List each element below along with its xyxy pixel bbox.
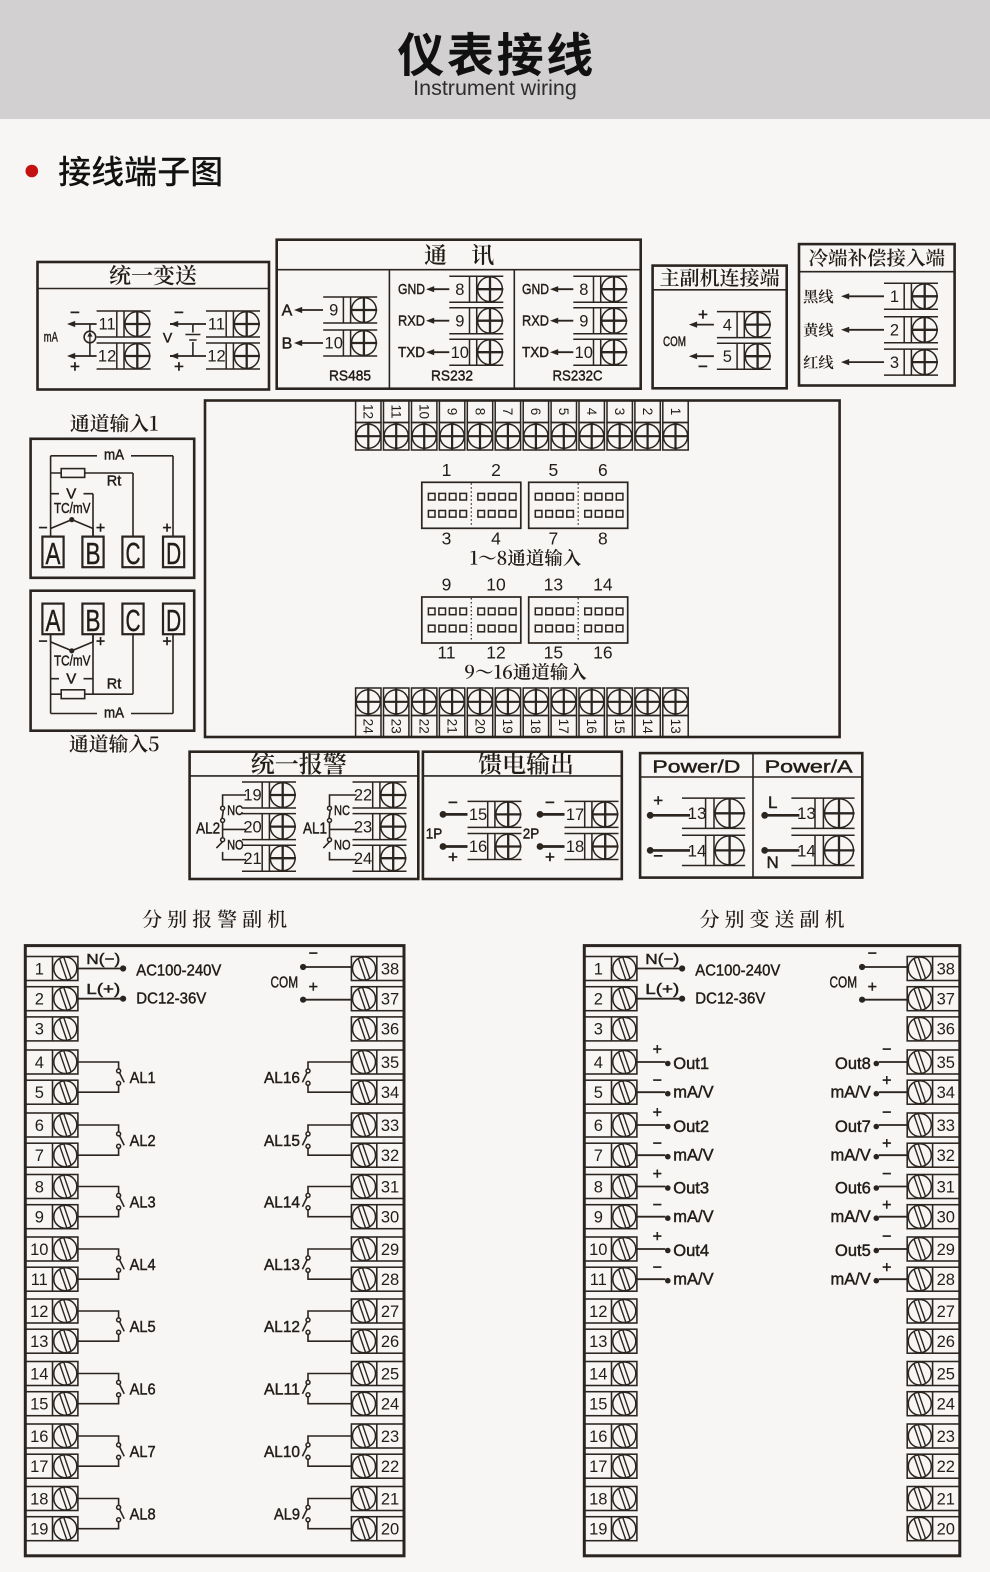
svg-text:+: + bbox=[882, 1136, 891, 1153]
svg-text:12: 12 bbox=[98, 348, 116, 366]
svg-text:L(+): L(+) bbox=[645, 981, 679, 998]
svg-text:14: 14 bbox=[797, 841, 816, 860]
svg-text:−: − bbox=[868, 946, 877, 963]
svg-text:22: 22 bbox=[354, 787, 372, 805]
svg-text:+: + bbox=[882, 1073, 891, 1090]
svg-text:RXD: RXD bbox=[522, 313, 549, 330]
svg-text:mA/V: mA/V bbox=[673, 1271, 713, 1289]
svg-text:38: 38 bbox=[937, 960, 955, 978]
svg-text:AL1: AL1 bbox=[130, 1070, 156, 1087]
svg-text:−: − bbox=[653, 1073, 662, 1090]
svg-text:+: + bbox=[448, 848, 458, 867]
svg-text:9: 9 bbox=[594, 1209, 603, 1227]
svg-text:26: 26 bbox=[937, 1333, 955, 1351]
svg-text:24: 24 bbox=[354, 850, 372, 868]
svg-text:24: 24 bbox=[381, 1396, 399, 1414]
svg-text:22: 22 bbox=[937, 1458, 955, 1476]
svg-text:8: 8 bbox=[35, 1178, 44, 1196]
svg-text:AL11: AL11 bbox=[264, 1381, 300, 1398]
svg-text:GND: GND bbox=[398, 281, 425, 298]
svg-text:26: 26 bbox=[381, 1333, 399, 1351]
svg-text:15: 15 bbox=[544, 643, 563, 663]
svg-text:10: 10 bbox=[30, 1241, 48, 1259]
svg-text:2: 2 bbox=[890, 322, 899, 340]
svg-text:AL5: AL5 bbox=[130, 1319, 156, 1336]
svg-text:28: 28 bbox=[937, 1271, 955, 1289]
svg-text:22: 22 bbox=[381, 1458, 399, 1476]
svg-text:AL4: AL4 bbox=[130, 1257, 156, 1274]
svg-text:V: V bbox=[163, 330, 173, 346]
svg-text:10: 10 bbox=[416, 404, 431, 419]
svg-text:NC: NC bbox=[334, 802, 350, 818]
svg-text:+: + bbox=[96, 520, 105, 537]
svg-text:TC/mV: TC/mV bbox=[54, 654, 91, 670]
svg-text:Power/A: Power/A bbox=[765, 757, 853, 777]
svg-text:11: 11 bbox=[437, 643, 455, 663]
svg-text:GND: GND bbox=[522, 281, 549, 298]
svg-text:5: 5 bbox=[556, 408, 571, 416]
svg-text:1: 1 bbox=[594, 960, 603, 978]
svg-text:mA/V: mA/V bbox=[830, 1147, 870, 1165]
svg-text:1: 1 bbox=[890, 288, 899, 306]
svg-text:C: C bbox=[126, 603, 141, 638]
svg-text:16: 16 bbox=[589, 1428, 607, 1446]
svg-text:14: 14 bbox=[593, 575, 613, 595]
svg-text:B: B bbox=[86, 536, 101, 571]
svg-text:−: − bbox=[448, 793, 458, 812]
svg-text:1P: 1P bbox=[426, 826, 443, 843]
svg-text:29: 29 bbox=[381, 1241, 399, 1259]
svg-text:7: 7 bbox=[500, 408, 515, 416]
svg-text:B: B bbox=[282, 336, 293, 353]
svg-text:−: − bbox=[653, 1197, 662, 1214]
svg-text:−: − bbox=[882, 1229, 891, 1246]
svg-text:V: V bbox=[66, 485, 76, 502]
svg-text:COM: COM bbox=[663, 333, 686, 349]
svg-text:−: − bbox=[882, 1042, 891, 1059]
svg-text:27: 27 bbox=[381, 1303, 399, 1321]
svg-text:RS485: RS485 bbox=[329, 368, 371, 385]
svg-text:−: − bbox=[882, 1166, 891, 1183]
svg-text:8: 8 bbox=[598, 529, 608, 549]
svg-text:COM: COM bbox=[271, 975, 299, 992]
svg-text:21: 21 bbox=[937, 1490, 955, 1508]
svg-text:9: 9 bbox=[329, 302, 338, 320]
svg-text:AL8: AL8 bbox=[130, 1506, 156, 1523]
svg-text:+: + bbox=[653, 1166, 662, 1183]
svg-text:29: 29 bbox=[937, 1241, 955, 1259]
svg-text:10: 10 bbox=[589, 1241, 607, 1259]
svg-text:−: − bbox=[653, 1260, 662, 1277]
svg-text:8: 8 bbox=[472, 408, 487, 416]
svg-text:19: 19 bbox=[30, 1521, 48, 1539]
svg-text:+: + bbox=[653, 1105, 662, 1122]
svg-text:4: 4 bbox=[594, 1054, 603, 1072]
svg-text:1: 1 bbox=[35, 960, 44, 978]
svg-text:−: − bbox=[38, 520, 47, 537]
svg-text:10: 10 bbox=[325, 335, 343, 353]
svg-text:34: 34 bbox=[937, 1084, 955, 1102]
svg-text:NO: NO bbox=[227, 837, 244, 853]
svg-text:TXD: TXD bbox=[522, 344, 549, 361]
svg-text:AL14: AL14 bbox=[264, 1194, 300, 1211]
svg-text:5: 5 bbox=[549, 460, 559, 480]
svg-text:L: L bbox=[768, 793, 777, 812]
svg-text:25: 25 bbox=[937, 1365, 955, 1383]
svg-text:Rt: Rt bbox=[107, 473, 122, 489]
svg-text:7: 7 bbox=[594, 1147, 603, 1165]
svg-text:11: 11 bbox=[590, 1271, 607, 1289]
svg-text:−: − bbox=[882, 1105, 891, 1122]
svg-text:AL7: AL7 bbox=[130, 1444, 156, 1461]
svg-text:3: 3 bbox=[890, 354, 899, 372]
svg-text:19: 19 bbox=[589, 1521, 607, 1539]
svg-text:C: C bbox=[126, 536, 141, 571]
svg-text:Instrument wiring: Instrument wiring bbox=[413, 76, 577, 100]
svg-text:L(+): L(+) bbox=[86, 981, 120, 998]
svg-text:+: + bbox=[70, 357, 80, 376]
svg-text:mA/V: mA/V bbox=[830, 1084, 870, 1102]
svg-text:30: 30 bbox=[381, 1209, 399, 1227]
svg-text:−: − bbox=[309, 946, 318, 963]
svg-text:5: 5 bbox=[594, 1084, 603, 1102]
svg-text:mA/V: mA/V bbox=[673, 1084, 713, 1102]
svg-text:17: 17 bbox=[566, 806, 584, 824]
svg-text:33: 33 bbox=[381, 1117, 399, 1135]
svg-text:8: 8 bbox=[455, 281, 464, 299]
svg-text:24: 24 bbox=[937, 1396, 955, 1414]
svg-text:+: + bbox=[882, 1197, 891, 1214]
svg-text:−: − bbox=[70, 303, 80, 322]
svg-text:18: 18 bbox=[589, 1490, 607, 1508]
svg-text:23: 23 bbox=[381, 1428, 399, 1446]
svg-text:16: 16 bbox=[593, 643, 612, 663]
svg-text:2: 2 bbox=[594, 991, 603, 1009]
svg-text:2P: 2P bbox=[523, 826, 540, 843]
svg-text:8: 8 bbox=[594, 1178, 603, 1196]
svg-text:20: 20 bbox=[381, 1521, 399, 1539]
svg-text:DC12-36V: DC12-36V bbox=[695, 991, 765, 1008]
svg-text:AC100-240V: AC100-240V bbox=[136, 963, 221, 980]
svg-text:mA: mA bbox=[104, 705, 124, 721]
svg-text:Out8: Out8 bbox=[835, 1055, 871, 1073]
svg-text:AL6: AL6 bbox=[130, 1381, 156, 1398]
svg-text:14: 14 bbox=[640, 719, 655, 735]
svg-text:8: 8 bbox=[579, 281, 588, 299]
svg-text:27: 27 bbox=[937, 1303, 955, 1321]
svg-text:31: 31 bbox=[381, 1178, 399, 1196]
svg-text:COM: COM bbox=[830, 975, 858, 992]
svg-text:4: 4 bbox=[491, 529, 501, 549]
svg-text:AL3: AL3 bbox=[130, 1194, 156, 1211]
svg-text:AL9: AL9 bbox=[274, 1506, 300, 1523]
svg-text:14: 14 bbox=[589, 1365, 607, 1383]
svg-text:15: 15 bbox=[612, 719, 627, 734]
svg-text:23: 23 bbox=[354, 818, 372, 836]
svg-text:17: 17 bbox=[589, 1458, 607, 1476]
svg-text:1: 1 bbox=[668, 408, 683, 416]
svg-text:Out2: Out2 bbox=[673, 1118, 709, 1136]
svg-text:Out5: Out5 bbox=[835, 1242, 871, 1260]
svg-text:+: + bbox=[882, 1260, 891, 1277]
svg-text:9: 9 bbox=[442, 575, 452, 595]
svg-text:7: 7 bbox=[35, 1147, 44, 1165]
svg-text:Out7: Out7 bbox=[835, 1118, 871, 1136]
svg-text:20: 20 bbox=[472, 719, 487, 734]
svg-text:AL2: AL2 bbox=[130, 1133, 156, 1150]
svg-text:21: 21 bbox=[444, 719, 459, 734]
svg-text:19: 19 bbox=[243, 787, 261, 805]
svg-text:21: 21 bbox=[381, 1490, 399, 1508]
svg-text:AL16: AL16 bbox=[264, 1070, 300, 1087]
svg-text:+: + bbox=[653, 1042, 662, 1059]
svg-text:30: 30 bbox=[937, 1209, 955, 1227]
svg-text:4: 4 bbox=[584, 408, 599, 416]
svg-text:−: − bbox=[698, 357, 708, 376]
svg-text:2: 2 bbox=[491, 460, 501, 480]
svg-text:35: 35 bbox=[937, 1054, 955, 1072]
svg-text:32: 32 bbox=[381, 1147, 399, 1165]
svg-text:−: − bbox=[545, 793, 555, 812]
svg-text:V: V bbox=[66, 670, 76, 687]
svg-text:3: 3 bbox=[35, 1021, 44, 1039]
svg-text:3: 3 bbox=[612, 408, 627, 416]
svg-text:11: 11 bbox=[388, 404, 403, 418]
svg-text:5: 5 bbox=[35, 1084, 44, 1102]
svg-text:9: 9 bbox=[579, 312, 588, 330]
svg-text:Out4: Out4 bbox=[673, 1242, 709, 1260]
svg-text:28: 28 bbox=[381, 1271, 399, 1289]
svg-text:3: 3 bbox=[594, 1021, 603, 1039]
svg-text:36: 36 bbox=[381, 1021, 399, 1039]
svg-text:N: N bbox=[767, 853, 779, 872]
svg-text:9: 9 bbox=[35, 1209, 44, 1227]
svg-text:35: 35 bbox=[381, 1054, 399, 1072]
svg-text:+: + bbox=[96, 634, 105, 651]
svg-text:TC/mV: TC/mV bbox=[54, 501, 91, 517]
svg-text:+: + bbox=[545, 848, 555, 867]
svg-text:mA/V: mA/V bbox=[830, 1208, 870, 1226]
svg-text:11: 11 bbox=[99, 316, 116, 334]
svg-text:12: 12 bbox=[30, 1303, 48, 1321]
svg-text:13: 13 bbox=[668, 719, 683, 734]
svg-text:NO: NO bbox=[334, 837, 351, 853]
svg-text:−: − bbox=[653, 1136, 662, 1153]
svg-text:+: + bbox=[698, 305, 708, 324]
svg-text:31: 31 bbox=[937, 1178, 955, 1196]
svg-text:20: 20 bbox=[937, 1521, 955, 1539]
svg-text:6: 6 bbox=[35, 1117, 44, 1135]
svg-text:+: + bbox=[868, 979, 877, 996]
svg-text:22: 22 bbox=[416, 719, 431, 734]
svg-text:17: 17 bbox=[30, 1458, 48, 1476]
svg-text:9: 9 bbox=[444, 408, 459, 416]
svg-text:N(−): N(−) bbox=[86, 951, 120, 968]
svg-text:23: 23 bbox=[388, 719, 403, 734]
svg-text:12: 12 bbox=[207, 348, 225, 366]
svg-text:37: 37 bbox=[937, 991, 955, 1009]
svg-text:Out3: Out3 bbox=[673, 1180, 709, 1198]
svg-text:AL1: AL1 bbox=[303, 821, 327, 838]
svg-text:13: 13 bbox=[544, 575, 563, 595]
svg-text:34: 34 bbox=[381, 1084, 399, 1102]
svg-text:AC100-240V: AC100-240V bbox=[695, 963, 780, 980]
svg-text:DC12-36V: DC12-36V bbox=[136, 991, 206, 1008]
svg-text:18: 18 bbox=[30, 1490, 48, 1508]
svg-text:A: A bbox=[282, 303, 293, 320]
svg-text:13: 13 bbox=[688, 804, 707, 823]
svg-text:+: + bbox=[162, 634, 171, 651]
svg-text:3: 3 bbox=[442, 529, 452, 549]
svg-text:RS232C: RS232C bbox=[553, 368, 603, 385]
svg-text:12: 12 bbox=[589, 1303, 607, 1321]
svg-text:18: 18 bbox=[566, 838, 584, 856]
svg-text:23: 23 bbox=[937, 1428, 955, 1446]
svg-text:17: 17 bbox=[556, 719, 571, 734]
svg-text:−: − bbox=[174, 303, 184, 322]
svg-text:4: 4 bbox=[723, 316, 732, 334]
svg-text:6: 6 bbox=[598, 460, 608, 480]
svg-text:Out6: Out6 bbox=[835, 1180, 871, 1198]
svg-text:5: 5 bbox=[723, 348, 732, 366]
svg-text:AL12: AL12 bbox=[264, 1319, 300, 1336]
svg-text:+: + bbox=[162, 520, 171, 537]
svg-text:AL10: AL10 bbox=[264, 1444, 300, 1461]
svg-text:32: 32 bbox=[937, 1147, 955, 1165]
svg-text:6: 6 bbox=[528, 408, 543, 416]
svg-text:38: 38 bbox=[381, 960, 399, 978]
svg-text:AL15: AL15 bbox=[264, 1133, 300, 1150]
svg-text:mA: mA bbox=[104, 448, 124, 464]
svg-text:10: 10 bbox=[486, 575, 506, 595]
svg-text:11: 11 bbox=[31, 1271, 48, 1289]
svg-text:AL13: AL13 bbox=[264, 1257, 300, 1274]
svg-text:10: 10 bbox=[575, 344, 593, 362]
svg-text:18: 18 bbox=[528, 719, 543, 734]
svg-text:25: 25 bbox=[381, 1365, 399, 1383]
svg-text:11: 11 bbox=[208, 316, 225, 334]
svg-text:mA: mA bbox=[44, 329, 58, 345]
svg-text:13: 13 bbox=[797, 804, 816, 823]
svg-text:N(−): N(−) bbox=[645, 951, 679, 968]
svg-text:−: − bbox=[38, 634, 47, 651]
svg-text:A: A bbox=[46, 536, 61, 571]
svg-text:2: 2 bbox=[35, 991, 44, 1009]
svg-text:+: + bbox=[653, 791, 663, 810]
svg-text:37: 37 bbox=[381, 991, 399, 1009]
svg-text:mA/V: mA/V bbox=[673, 1147, 713, 1165]
svg-text:21: 21 bbox=[243, 850, 261, 868]
svg-text:Rt: Rt bbox=[107, 676, 122, 692]
svg-text:Power/D: Power/D bbox=[652, 757, 740, 777]
svg-text:NC: NC bbox=[227, 802, 243, 818]
svg-text:10: 10 bbox=[451, 344, 469, 362]
svg-text:+: + bbox=[653, 1229, 662, 1246]
svg-text:12: 12 bbox=[486, 643, 505, 663]
svg-text:15: 15 bbox=[469, 806, 487, 824]
svg-text:mA/V: mA/V bbox=[830, 1271, 870, 1289]
svg-text:6: 6 bbox=[594, 1117, 603, 1135]
svg-text:20: 20 bbox=[243, 818, 261, 836]
svg-text:14: 14 bbox=[688, 841, 707, 860]
svg-text:RXD: RXD bbox=[398, 313, 425, 330]
svg-text:D: D bbox=[166, 536, 181, 571]
svg-text:−: − bbox=[653, 847, 663, 866]
svg-text:24: 24 bbox=[361, 719, 376, 735]
svg-text:9: 9 bbox=[455, 312, 464, 330]
svg-text:+: + bbox=[309, 979, 318, 996]
svg-text:15: 15 bbox=[589, 1396, 607, 1414]
svg-text:TXD: TXD bbox=[398, 344, 425, 361]
svg-text:16: 16 bbox=[30, 1428, 48, 1446]
svg-text:13: 13 bbox=[30, 1333, 48, 1351]
svg-text:15: 15 bbox=[30, 1396, 48, 1414]
svg-text:4: 4 bbox=[35, 1054, 44, 1072]
svg-text:33: 33 bbox=[937, 1117, 955, 1135]
svg-text:16: 16 bbox=[584, 719, 599, 734]
svg-text:2: 2 bbox=[640, 408, 655, 416]
svg-text:AL2: AL2 bbox=[196, 821, 220, 838]
svg-text:1: 1 bbox=[442, 460, 452, 480]
svg-text:16: 16 bbox=[469, 838, 487, 856]
svg-text:36: 36 bbox=[937, 1021, 955, 1039]
svg-text:7: 7 bbox=[549, 529, 559, 549]
svg-text:13: 13 bbox=[589, 1333, 607, 1351]
svg-text:14: 14 bbox=[30, 1365, 48, 1383]
svg-text:Out1: Out1 bbox=[673, 1055, 709, 1073]
svg-text:RS232: RS232 bbox=[431, 368, 473, 385]
svg-text:+: + bbox=[174, 357, 184, 376]
svg-text:mA/V: mA/V bbox=[673, 1208, 713, 1226]
svg-text:A: A bbox=[46, 603, 61, 638]
svg-text:12: 12 bbox=[361, 404, 376, 419]
svg-text:19: 19 bbox=[500, 719, 515, 734]
